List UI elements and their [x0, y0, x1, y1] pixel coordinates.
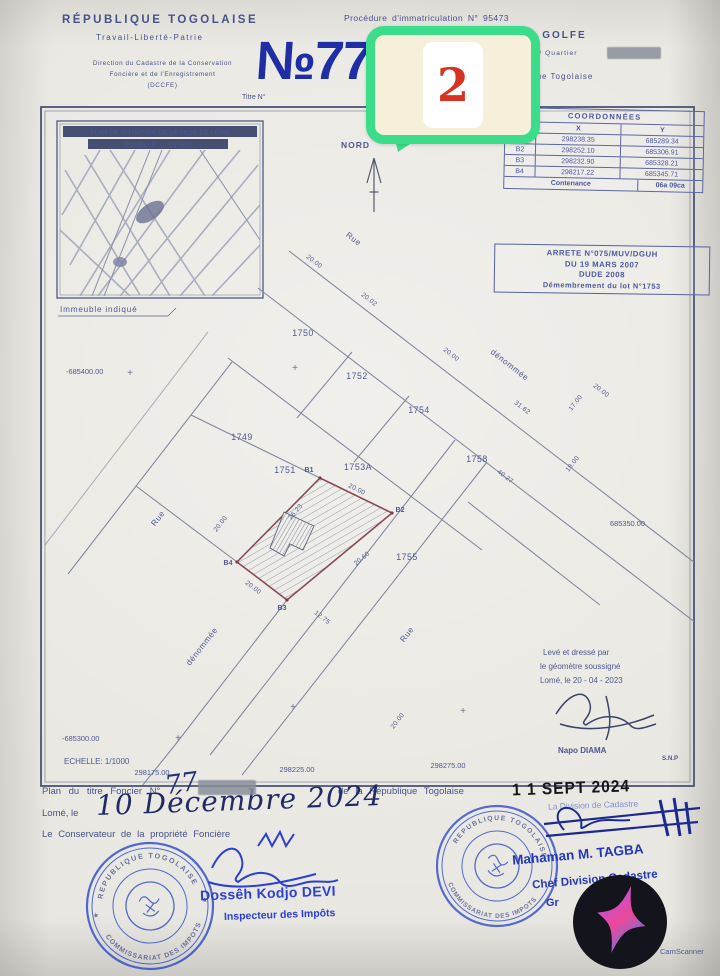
dimension-label: 31.62	[513, 400, 532, 417]
map-inset-caption: Immeuble indiqué	[60, 305, 137, 314]
map-blob	[113, 257, 127, 267]
situation-map-inset: PLAN DE SITUATION DE LA VILLE DE LOME EC…	[57, 121, 263, 316]
cell-y: 685289.34	[620, 135, 703, 147]
surveyor-line3: Lomé, le 20 - 04 - 2023	[540, 676, 623, 685]
impots-round-stamp: REPUBLIQUE TOGOLAISE COMMISSARIAT DES IM…	[79, 835, 221, 976]
north-arrow	[367, 158, 381, 212]
street-label: dénommée	[489, 347, 531, 382]
corner-label: B3	[278, 605, 287, 612]
parcel-label: 1753A	[344, 462, 372, 472]
parcel-label: 1750	[292, 328, 314, 338]
parcel-label: 1758	[466, 454, 488, 464]
cell-x: 298252.10	[535, 145, 620, 157]
svg-text:+: +	[127, 368, 133, 379]
cadastre-round-stamp: REPUBLIQUE TOGOLAISE COMMISSARIAT DES IM…	[427, 796, 566, 935]
cell-pt: B3	[505, 155, 535, 166]
north-label: NORD	[341, 140, 370, 150]
street-label: dénommée	[184, 626, 219, 668]
street-labels: Rue dénommée Rue dénommée Rue	[149, 230, 530, 667]
col-header-y: Y	[620, 124, 703, 136]
cell-pt: B2	[505, 144, 535, 155]
corner-label: B1	[305, 467, 314, 474]
surveyor-signature	[556, 694, 656, 740]
dimension-label: 20.00	[592, 383, 611, 400]
svg-text:+: +	[460, 706, 466, 717]
svg-text:+: +	[175, 733, 181, 744]
arrete-line4: Démembrement du lot N°1753	[495, 279, 709, 292]
cell-x: 298232.90	[535, 156, 620, 168]
parcel-label: 1751	[274, 465, 296, 475]
dimension-label: 20.00	[305, 254, 324, 271]
redaction-blob-title-number	[198, 780, 256, 795]
surveyor-ref: S.N.P	[662, 755, 678, 762]
svg-text:+: +	[290, 702, 296, 713]
grid-label: -685300.00	[62, 734, 99, 743]
svg-text:+: +	[292, 363, 298, 374]
parcel-label: 1752	[346, 371, 368, 381]
inspector-signature	[208, 832, 338, 887]
scanner-watermark: CamScanner	[556, 862, 720, 976]
dimension-label: 20.00	[442, 347, 461, 364]
scanned-land-title-document: RÉPUBLIQUE TOGOLAISE Travail-Liberté-Pat…	[0, 0, 720, 976]
surveyor-line2: le géomètre soussigné	[540, 662, 621, 671]
contenance-value: 06a 09ca	[637, 180, 702, 192]
corner-label: B2	[396, 507, 405, 514]
map-street-lines	[60, 150, 260, 296]
col-header-x: X	[535, 123, 620, 135]
surveyor-name: Napo DIAMA	[558, 746, 607, 755]
dimension-label: 20.00	[213, 515, 230, 534]
map-inset-scale: ECHELLE 1 : 15 000	[125, 142, 192, 149]
dimension-label: 12.75	[313, 610, 332, 627]
dimension-label: 17.00	[568, 394, 585, 413]
plan-scale-label: ECHELLE: 1/1000	[64, 757, 130, 766]
street-label: Rue	[344, 230, 363, 247]
chief-signature	[544, 798, 700, 836]
dimension-label: 20.00	[244, 580, 263, 597]
surveyor-line1: Levé et dressé par	[543, 648, 610, 657]
street-label: Rue	[149, 509, 166, 528]
cell-x: 298217.22	[534, 167, 619, 179]
footer-line2-pre: Lomé, le	[42, 809, 78, 819]
annotation-badge-card: 2	[423, 42, 483, 128]
cell-y: 685345.71	[619, 168, 702, 180]
cell-y: 685306.91	[620, 146, 703, 158]
cell-pt: B4	[504, 166, 534, 177]
annotation-badge: 2	[366, 26, 540, 144]
map-inset-title: PLAN DE SITUATION DE LA VILLE DE LOME	[90, 130, 229, 137]
dimension-label: 20.02	[360, 292, 379, 309]
cell-y: 685328.21	[620, 157, 703, 169]
grid-label: 298225.00	[280, 765, 315, 774]
annotation-badge-number: 2	[437, 58, 469, 112]
grid-label: -685400.00	[66, 367, 103, 376]
parcel-label: 1755	[396, 552, 418, 562]
grid-label: 685350.00	[610, 519, 645, 528]
cell-x: 298238.35	[535, 134, 620, 146]
corner-label: B4	[224, 560, 233, 567]
contenance-label: Contenance	[504, 177, 637, 191]
grid-label: 298275.00	[431, 761, 466, 770]
dimension-label: 20.60	[353, 550, 371, 567]
parcel-label: 1749	[231, 432, 253, 442]
parcel-label: 1754	[408, 405, 430, 415]
svg-text:★: ★	[92, 911, 99, 920]
dimension-label: 40.27	[496, 469, 515, 486]
arrete-box: ARRETE N°075/MUV/DGUH DU 19 MARS 2007 DU…	[494, 243, 711, 295]
street-label: Rue	[398, 625, 415, 644]
subject-parcel-hatched	[235, 476, 393, 601]
dimension-labels: 20.00 20.02 20.00 20.00 31.62 17.00 18.0…	[213, 254, 611, 731]
dimension-label: 20.00	[390, 712, 407, 731]
scanner-brand-text: CamScanner	[660, 947, 704, 956]
surveyor-block: Levé et dressé par le géomètre soussigné…	[540, 648, 678, 762]
